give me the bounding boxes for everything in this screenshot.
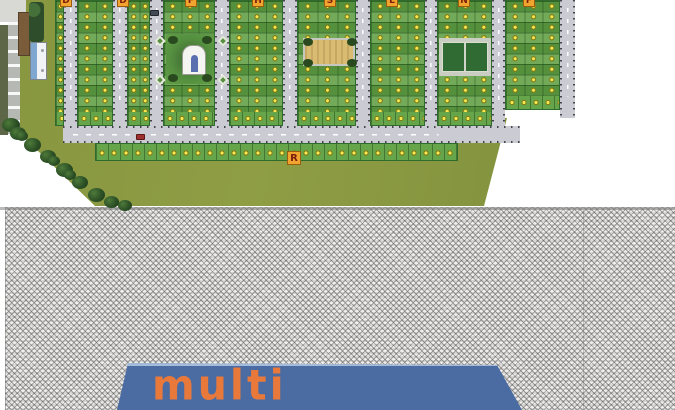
plot-block-bottom-row [164,112,214,125]
plot-block [77,0,113,126]
plot-block-bottom-row [78,112,112,125]
temple-icon [182,45,206,75]
bush-icon [347,38,357,46]
roadside-plot-row [95,143,458,161]
tree-icon [88,188,105,202]
bush-icon [202,36,212,44]
road [560,0,575,118]
court-field [442,42,488,72]
building-detail [41,69,44,72]
car-icon [136,134,145,140]
road [356,0,370,126]
tree-icon [24,138,41,152]
section-marker-badge: S [324,0,336,7]
road [150,0,163,126]
tree-icon [48,156,60,166]
section-marker-badge: D [117,0,129,7]
plot-block [229,0,283,126]
section-marker-badge: H [252,0,264,7]
tree-icon [64,170,76,180]
hatch-left-line [5,207,6,410]
bush-icon [202,74,212,82]
plot-block-bottom-row [56,112,63,125]
bush-icon [303,38,313,46]
plot-block [505,0,560,110]
bush-icon [347,59,357,67]
bush-icon [168,74,178,82]
road [492,0,505,126]
tree-icon [16,131,28,141]
road [215,0,229,126]
temple-deity [191,55,198,72]
plot-block-bottom-row [230,112,282,125]
road [425,0,437,126]
road-marker-badge: R [287,151,301,165]
plot-block [55,0,64,126]
hatch-top-band [0,207,675,210]
building-detail [41,49,44,52]
temple-garden [166,34,214,84]
building-shaded-side [31,43,37,79]
hedge-icon [29,2,44,42]
bush-icon [168,36,178,44]
road [64,0,77,126]
section-marker-badge: F [523,0,535,7]
tree-icon [118,200,132,211]
car-icon [150,10,159,16]
section-marker-badge: N [458,0,470,7]
plot-block [127,0,150,126]
hatch-fold-line [583,210,584,410]
plot-block-bottom-row [438,112,491,125]
brochure-page: R DDFHSLNF multi [0,0,675,410]
plot-block-bottom-row [128,112,149,125]
plot-block [370,0,425,126]
road [283,0,297,126]
plot-block-bottom-row [506,96,559,109]
section-marker-badge: L [386,0,398,7]
sports-court-icon [439,38,491,76]
road [113,0,127,126]
main-road [63,126,520,143]
logo-text: multi [152,364,287,407]
plot-block-bottom-row [298,112,355,125]
plot-block-bottom-row [371,112,424,125]
sand-playground-icon [303,38,355,66]
tree-icon [104,196,119,208]
section-marker-badge: F [185,0,197,7]
bush-icon [303,59,313,67]
site-plan-map: R DDFHSLNF [0,0,675,207]
site-office-icon [30,42,47,80]
section-marker-badge: D [60,0,72,7]
company-logo: multi [110,357,530,410]
